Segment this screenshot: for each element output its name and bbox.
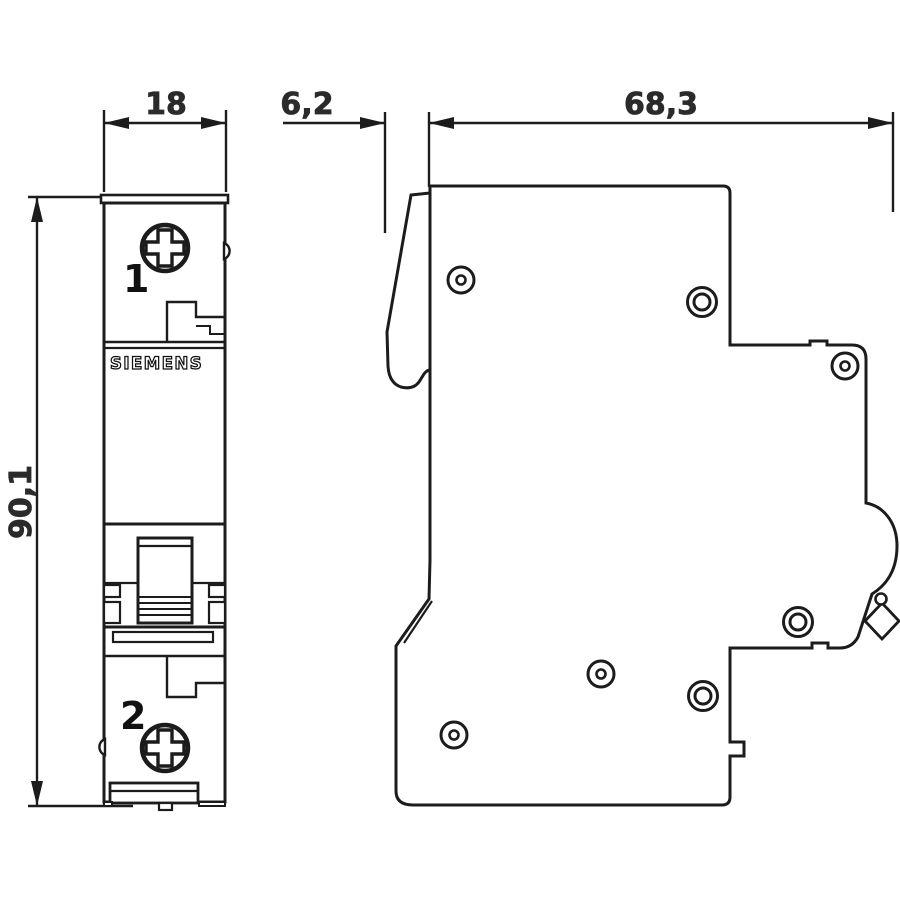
dimension-height-label: 90,1 [4,465,39,539]
edge-notch-right [224,243,230,259]
bottom-stub [199,802,225,806]
latch-notch [209,602,225,623]
rivet-icon [832,353,858,379]
toggle-rocker [138,538,192,623]
dimension-depth-label: 68,3 [624,87,698,122]
front-view [99,195,229,810]
din-clip-pivot [876,594,887,605]
terminal-1-label: 1 [123,257,149,301]
latch-notch [104,585,120,597]
rivet-ring-icon [688,288,717,317]
dimension-width-label: 18 [145,87,187,122]
bottom-stub [104,802,112,806]
phillips-screw-bottom-icon [142,725,188,771]
rivet-icon [448,267,474,293]
rivet-ring-icon [689,682,718,711]
technical-drawing-canvas: 18 90,1 6,2 68,3 [0,0,900,900]
toggle-frame-bar [113,632,213,642]
dimension-toggle-depth-label: 6,2 [280,87,333,122]
brand-label: SIEMENS [110,354,203,373]
bottom-tab [159,803,172,810]
bottom-terminal-guard [110,783,198,803]
technical-drawing: 18 90,1 6,2 68,3 [0,0,900,900]
rivet-icon [441,722,467,748]
latch-notch [104,602,120,623]
edge-notch-left [99,739,105,755]
latch-notch [209,585,225,597]
rivet-ring-icon [784,608,813,637]
rivet-icon [588,661,614,687]
terminal-2-label: 2 [120,694,146,738]
